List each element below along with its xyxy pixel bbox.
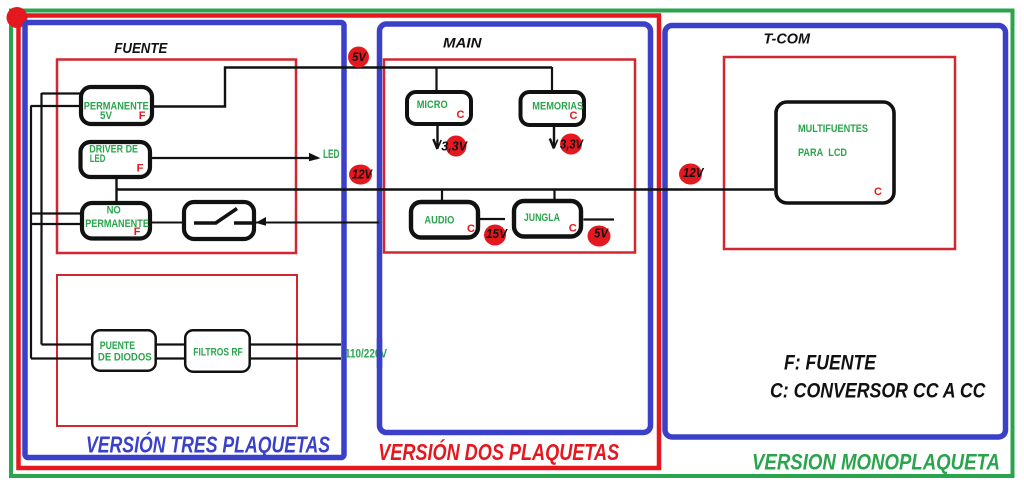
svg-text:C: C — [457, 109, 465, 121]
svg-text:F: F — [137, 163, 144, 175]
svg-text:VERSIÓN TRES PLAQUETAS: VERSIÓN TRES PLAQUETAS — [86, 431, 331, 458]
svg-text:FUENTE: FUENTE — [114, 40, 168, 57]
svg-text:MULTIFUENTES: MULTIFUENTES — [798, 123, 868, 135]
svg-text:5V: 5V — [594, 227, 610, 241]
svg-text:NO: NO — [107, 205, 122, 217]
svg-text:3,3V: 3,3V — [560, 137, 584, 152]
svg-text:15V: 15V — [486, 227, 509, 241]
svg-text:PARA LCD: PARA LCD — [798, 147, 847, 159]
svg-text:VERSION MONOPLAQUETA: VERSION MONOPLAQUETA — [752, 450, 1000, 475]
svg-text:DE DIODOS: DE DIODOS — [98, 352, 152, 364]
svg-text:F: F — [134, 226, 141, 238]
svg-text:JUNGLA: JUNGLA — [524, 212, 560, 224]
svg-text:T-COM: T-COM — [764, 32, 811, 48]
svg-text:LED: LED — [90, 153, 106, 165]
svg-text:MAIN: MAIN — [443, 36, 483, 51]
svg-text:F: FUENTE: F: FUENTE — [784, 351, 877, 375]
svg-text:PUENTE: PUENTE — [100, 340, 135, 352]
svg-text:C: CONVERSOR CC A CC: C: CONVERSOR CC A CC — [770, 379, 986, 403]
svg-text:5V: 5V — [352, 50, 367, 64]
svg-text:12V: 12V — [683, 166, 705, 180]
svg-text:C: C — [570, 110, 578, 122]
svg-text:C: C — [467, 223, 475, 235]
svg-text:AUDIO: AUDIO — [424, 215, 454, 227]
svg-text:12V: 12V — [352, 168, 373, 182]
svg-text:3,3V: 3,3V — [441, 139, 468, 154]
svg-text:MICRO: MICRO — [417, 99, 448, 111]
svg-text:VERSIÓN DOS PLAQUETAS: VERSIÓN DOS PLAQUETAS — [378, 438, 619, 465]
svg-text:FILTROS RF: FILTROS RF — [193, 347, 243, 359]
svg-text:C: C — [569, 223, 577, 235]
svg-text:C: C — [874, 186, 882, 198]
svg-text:LED: LED — [323, 149, 340, 161]
svg-text:F: F — [139, 110, 146, 122]
svg-text:5V: 5V — [100, 110, 113, 122]
